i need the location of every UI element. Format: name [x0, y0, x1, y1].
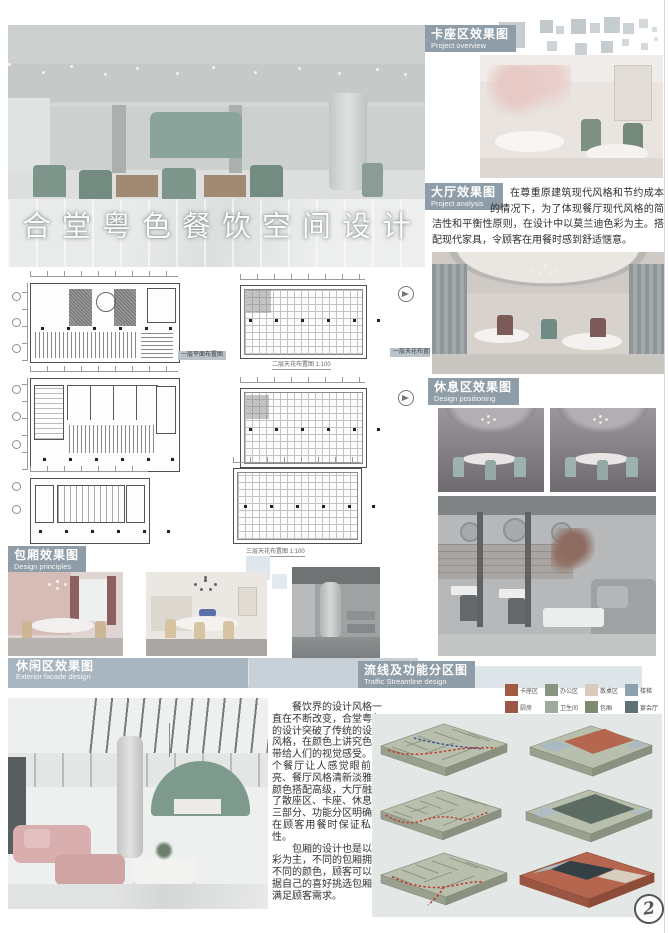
ceiling-grid — [237, 472, 358, 540]
main-paragraph-1: 餐饮界的设计风格一直在不断改变，合堂粤色的设计突破了传统的设计风格，在颜色上讲究… — [272, 702, 382, 844]
center-feature-circle — [96, 292, 116, 312]
table-plant — [154, 841, 175, 860]
floor — [8, 638, 123, 656]
zone-diagram-floor2 — [520, 786, 658, 848]
teal-chair — [565, 457, 577, 477]
sofa-cushion — [597, 586, 628, 608]
side-room — [126, 485, 146, 522]
legend-label: 卡座区 — [520, 686, 538, 695]
dining-chair — [162, 168, 195, 199]
dark-chair — [508, 598, 525, 624]
section-label-rest-area: 休息区效果图 Design positioning — [428, 378, 519, 405]
corner-room — [246, 290, 271, 313]
mosaic-square — [272, 574, 287, 589]
carpet-hatch — [114, 289, 136, 326]
section-label-zh: 卡座区效果图 — [431, 28, 509, 41]
legend-swatch — [545, 684, 558, 696]
legend-swatch — [505, 701, 518, 713]
flow-diagram-floor2 — [378, 786, 504, 846]
legend-swatch — [585, 684, 598, 696]
plan-caption: 一层天花布置图 — [390, 348, 430, 357]
plant — [551, 528, 595, 579]
wall-mirror — [614, 65, 653, 121]
round-column — [320, 582, 341, 639]
grid-axis-bubble — [12, 385, 21, 394]
column-dots — [41, 327, 44, 330]
compass-icon — [398, 390, 414, 406]
round-column — [329, 93, 367, 190]
teal-chair — [626, 457, 638, 477]
side-rooms — [147, 288, 176, 323]
section-label-en: Traffic Streamline design — [364, 678, 468, 686]
annex-room — [34, 385, 64, 440]
section-label-booth-area: 卡座区效果图 Project overview — [425, 25, 516, 52]
flow-diagram-floor3 — [378, 848, 510, 912]
dining-tables — [347, 611, 375, 620]
corner-room — [246, 395, 269, 418]
floor-plan-3f-layout — [30, 478, 150, 544]
pink-sofa — [55, 854, 125, 886]
dimension-line — [233, 457, 360, 463]
column-dots — [249, 319, 252, 322]
column-dots — [39, 530, 42, 533]
private-rooms — [67, 385, 159, 421]
blossom-branch — [487, 65, 571, 117]
poster-board: 合堂粤色餐饮空间设计 卡座区效果图 Project overview 大 — [0, 0, 668, 933]
carpet-hatch — [69, 289, 91, 326]
section-label-zh: 流线及功能分区图 — [364, 664, 468, 677]
partition-pole — [525, 512, 530, 627]
section-label-en: Design principles — [14, 563, 79, 571]
banquet-hall — [57, 485, 125, 522]
booth-area-render-image — [480, 55, 663, 178]
rest-room-render-2 — [550, 408, 656, 492]
left-wall — [292, 584, 315, 637]
column-dots — [43, 458, 46, 461]
legend-item: 楼梯 — [625, 682, 665, 698]
hero-render-image: 合堂粤色餐饮空间设计 — [8, 25, 425, 267]
legend-label: 办公区 — [560, 686, 578, 695]
round-mirror — [503, 518, 527, 542]
label-spacer — [432, 186, 490, 212]
legend-label: 散桌区 — [600, 686, 618, 695]
wood-chair — [223, 621, 234, 639]
column-dots — [244, 505, 247, 508]
legend-item: 宴会厅 — [625, 699, 665, 715]
section-label-leisure: 休闲区效果图 Exterior facade design — [8, 658, 418, 688]
floor — [432, 354, 664, 374]
red-chair — [590, 318, 606, 338]
legend-label: 卫生间 — [560, 703, 578, 712]
section-label-en: Exterior facade design — [16, 673, 410, 681]
marble-floor — [8, 884, 268, 909]
dimension-line — [240, 377, 365, 383]
leisure-area-render — [8, 698, 268, 909]
legend-label: 宴会厅 — [640, 703, 658, 712]
wood-chair — [22, 621, 32, 638]
ceiling-plan-3f — [233, 468, 362, 544]
ceiling-plan-2f — [240, 388, 367, 468]
booth-table — [499, 589, 525, 599]
grid-axis-bubble — [12, 344, 21, 353]
section-label-en: Design positioning — [434, 395, 512, 403]
section-label-zh: 包厢效果图 — [14, 549, 79, 562]
rest-lounge-render — [438, 496, 656, 656]
dimension-line — [30, 366, 178, 372]
design-description-text: 餐饮界的设计风格一直在不断改变，合堂粤色的设计突破了传统的设计风格，在颜色上讲究… — [272, 702, 382, 903]
floor-plan-2f-layout — [30, 378, 180, 472]
private-room-render-1 — [8, 572, 123, 656]
dining-tables — [347, 624, 375, 633]
pergola-ceiling — [81, 698, 268, 761]
section-label-traffic: 流线及功能分区图 Traffic Streamline design — [358, 661, 475, 688]
legend-item: 办公区 — [545, 682, 585, 698]
dining-chair — [250, 165, 283, 196]
poster-title: 合堂粤色餐饮空间设计 — [8, 203, 425, 245]
hall-render-image — [432, 252, 664, 374]
legend-swatch — [545, 701, 558, 713]
teal-chair — [514, 457, 526, 477]
legend-swatch — [585, 701, 598, 713]
wood-chair — [165, 619, 176, 637]
arched-ceiling — [438, 408, 544, 438]
column — [112, 105, 125, 173]
grid-axis-bubble — [12, 412, 21, 421]
coffee-table — [543, 608, 604, 627]
ceiling-plan-1f — [240, 285, 367, 359]
teal-chair — [597, 460, 609, 480]
flow-diagram-floor1 — [378, 720, 510, 782]
floor — [438, 634, 656, 656]
grid-axis-bubble — [12, 440, 21, 449]
legend-item: 散桌区 — [585, 682, 625, 698]
grid-axis-bubble — [12, 482, 21, 491]
zone-legend: 卡座区 办公区 散桌区 楼梯 厨房 卫生间 包厢 宴会厅 — [505, 682, 665, 715]
pendant-lights — [8, 63, 11, 66]
sputnik-chandelier — [204, 579, 207, 582]
teal-pavilion — [150, 112, 242, 158]
column-dots — [249, 428, 252, 431]
stage-hatch — [141, 331, 174, 358]
teal-chair — [541, 319, 557, 339]
section-label-zh: 休息区效果图 — [434, 381, 512, 394]
wood-chair — [194, 622, 205, 640]
dimension-line — [22, 283, 28, 361]
round-table — [31, 618, 94, 633]
grid-axis-bubble — [12, 505, 21, 514]
dimension-line — [240, 274, 365, 280]
pink-pillow — [24, 829, 50, 848]
reflective-floor — [292, 637, 380, 659]
legend-label: 厨房 — [520, 703, 532, 712]
chandelier — [599, 415, 602, 418]
wall-art — [238, 587, 257, 616]
curtain-left — [432, 264, 467, 362]
section-label-en: Project overview — [431, 42, 509, 50]
coffee-table — [133, 858, 195, 883]
plan-caption-text: 二层天花布置图 1:100 — [272, 359, 331, 370]
legend-item: 卡座区 — [505, 682, 545, 698]
red-chair — [497, 315, 513, 335]
red-curtain — [107, 576, 116, 625]
legend-item: 厨房 — [505, 699, 545, 715]
dimension-line — [30, 466, 148, 472]
white-table — [495, 131, 565, 152]
window-panel — [8, 98, 50, 173]
legend-label: 楼梯 — [640, 686, 652, 695]
dimension-line — [22, 378, 28, 470]
chandelier — [487, 415, 490, 418]
rest-room-render-1 — [438, 408, 544, 492]
partition-pole — [477, 512, 482, 627]
booth-table — [451, 586, 477, 596]
grid-axis-bubble — [12, 318, 21, 327]
seating-hatch — [35, 332, 136, 358]
arched-ceiling — [550, 408, 656, 438]
teal-chair — [453, 457, 465, 477]
floor-plan-1f-layout — [30, 283, 180, 363]
dimension-line — [30, 271, 178, 277]
curtain-right — [629, 264, 664, 362]
legend-swatch — [625, 684, 638, 696]
dark-chair — [460, 595, 477, 621]
legend-swatch — [625, 701, 638, 713]
wood-chair — [95, 621, 105, 638]
zone-diagram-floor1 — [524, 722, 658, 782]
bar-stool — [362, 163, 383, 197]
main-paragraph-2: 包厢的设计也是以色彩为主，不同的包厢拥有不同的颜色，顾客可以根据自己的喜好挑选包… — [272, 844, 382, 903]
right-border-line — [664, 0, 665, 933]
round-column — [117, 736, 143, 858]
private-room-render-2 — [146, 572, 267, 656]
traffic-diagram-panel — [372, 714, 662, 917]
side-room — [156, 386, 176, 434]
watermark-glyph: 2 — [642, 898, 657, 919]
dining-chair — [33, 165, 66, 196]
legend-item: 包厢 — [585, 699, 625, 715]
section-label-private-room: 包厢效果图 Design principles — [8, 546, 86, 573]
seating-hatch — [69, 425, 155, 453]
corridor-render — [292, 567, 380, 659]
floor — [480, 158, 663, 178]
legend-swatch — [505, 684, 518, 696]
booth-table — [174, 799, 221, 814]
pendant-light — [169, 723, 170, 757]
wood-table — [116, 175, 158, 197]
floor — [146, 639, 267, 656]
dark-ceiling — [438, 496, 656, 515]
dining-chair — [79, 170, 112, 201]
side-room — [35, 485, 55, 522]
compass-icon — [398, 286, 414, 302]
legend-item: 卫生间 — [545, 699, 585, 715]
wood-table — [204, 175, 246, 197]
teal-chair — [485, 460, 497, 480]
bar-divider — [248, 660, 249, 686]
dark-ceiling — [292, 567, 380, 584]
hall-analysis-text: 在尊重原建筑现代风格和节约成本的情况下，为了体现餐厅现代风格的简洁性和平衡性原则… — [432, 186, 664, 248]
plan-caption: 一层平面布置图 — [178, 351, 226, 360]
legend-label: 包厢 — [600, 703, 612, 712]
grid-axis-bubble — [12, 292, 21, 301]
